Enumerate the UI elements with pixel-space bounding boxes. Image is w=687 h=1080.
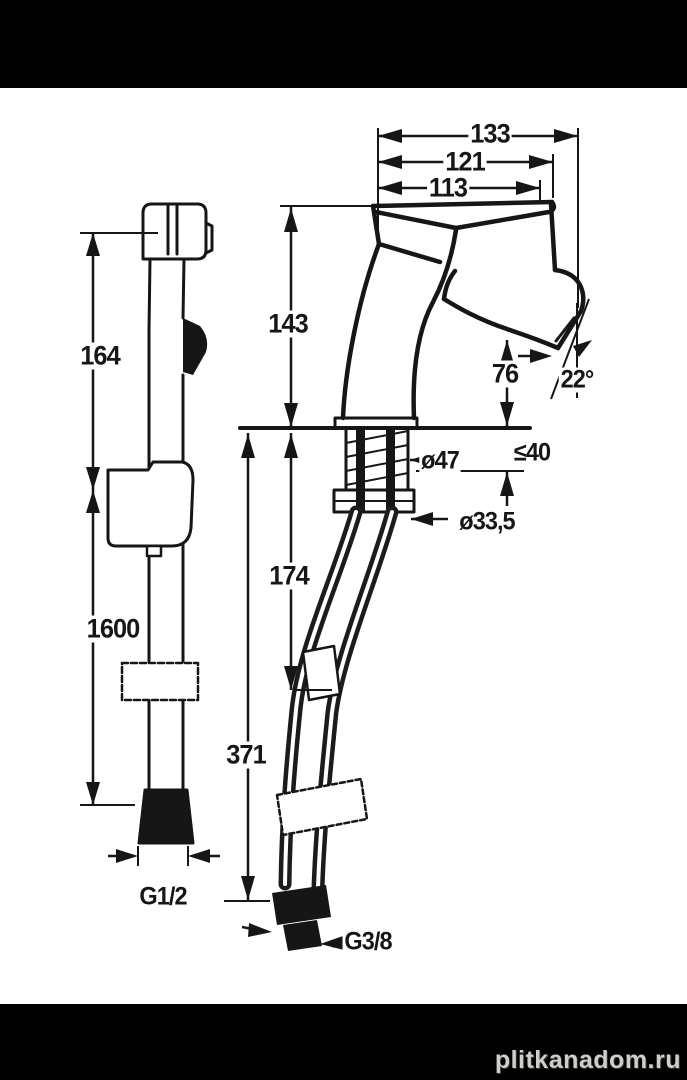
dim-depth-handle: 121: [443, 149, 486, 176]
shower-trigger: [183, 318, 207, 375]
dim-supply-thread: G3/8: [343, 930, 394, 955]
dim-depth-spout: 113: [427, 175, 469, 202]
dim-spout-outlet-height: 76: [490, 361, 520, 388]
hose-sleeve: [303, 646, 340, 700]
watermark: plitkanadom.ru: [495, 1046, 681, 1075]
dim-height-total: 143: [266, 311, 309, 338]
hose-end-thread: [283, 920, 322, 951]
dim-base-diameter: ø47: [419, 449, 460, 474]
hose-cone-end: [139, 790, 193, 843]
dim-depth-total: 133: [468, 121, 511, 148]
hose-break-symbol: [122, 663, 198, 700]
dim-tails-length: 174: [267, 563, 310, 590]
shower-head-outline: [143, 204, 206, 259]
dim-max-mounting-thickness: ≤40: [512, 441, 552, 466]
screenshot-root: 133 121 113 143 76 22° ø47 ≤40 ø33,5 174…: [0, 0, 687, 1080]
mixer-top-line: [373, 202, 552, 206]
dim-shower-height-to-holder: 164: [78, 343, 121, 370]
dim-spout-angle: 22°: [559, 368, 595, 393]
dim-shank-diameter: ø33,5: [457, 510, 516, 535]
dim-hose-reach: 371: [224, 742, 267, 769]
dim-hose-length: 1600: [85, 616, 141, 643]
shower-holder: [108, 462, 193, 546]
technical-drawing-canvas: [0, 0, 687, 1080]
hose-end-nut: [272, 885, 331, 925]
dim-shower-thread: G1/2: [138, 885, 189, 910]
hand-shower-group: [108, 204, 212, 843]
